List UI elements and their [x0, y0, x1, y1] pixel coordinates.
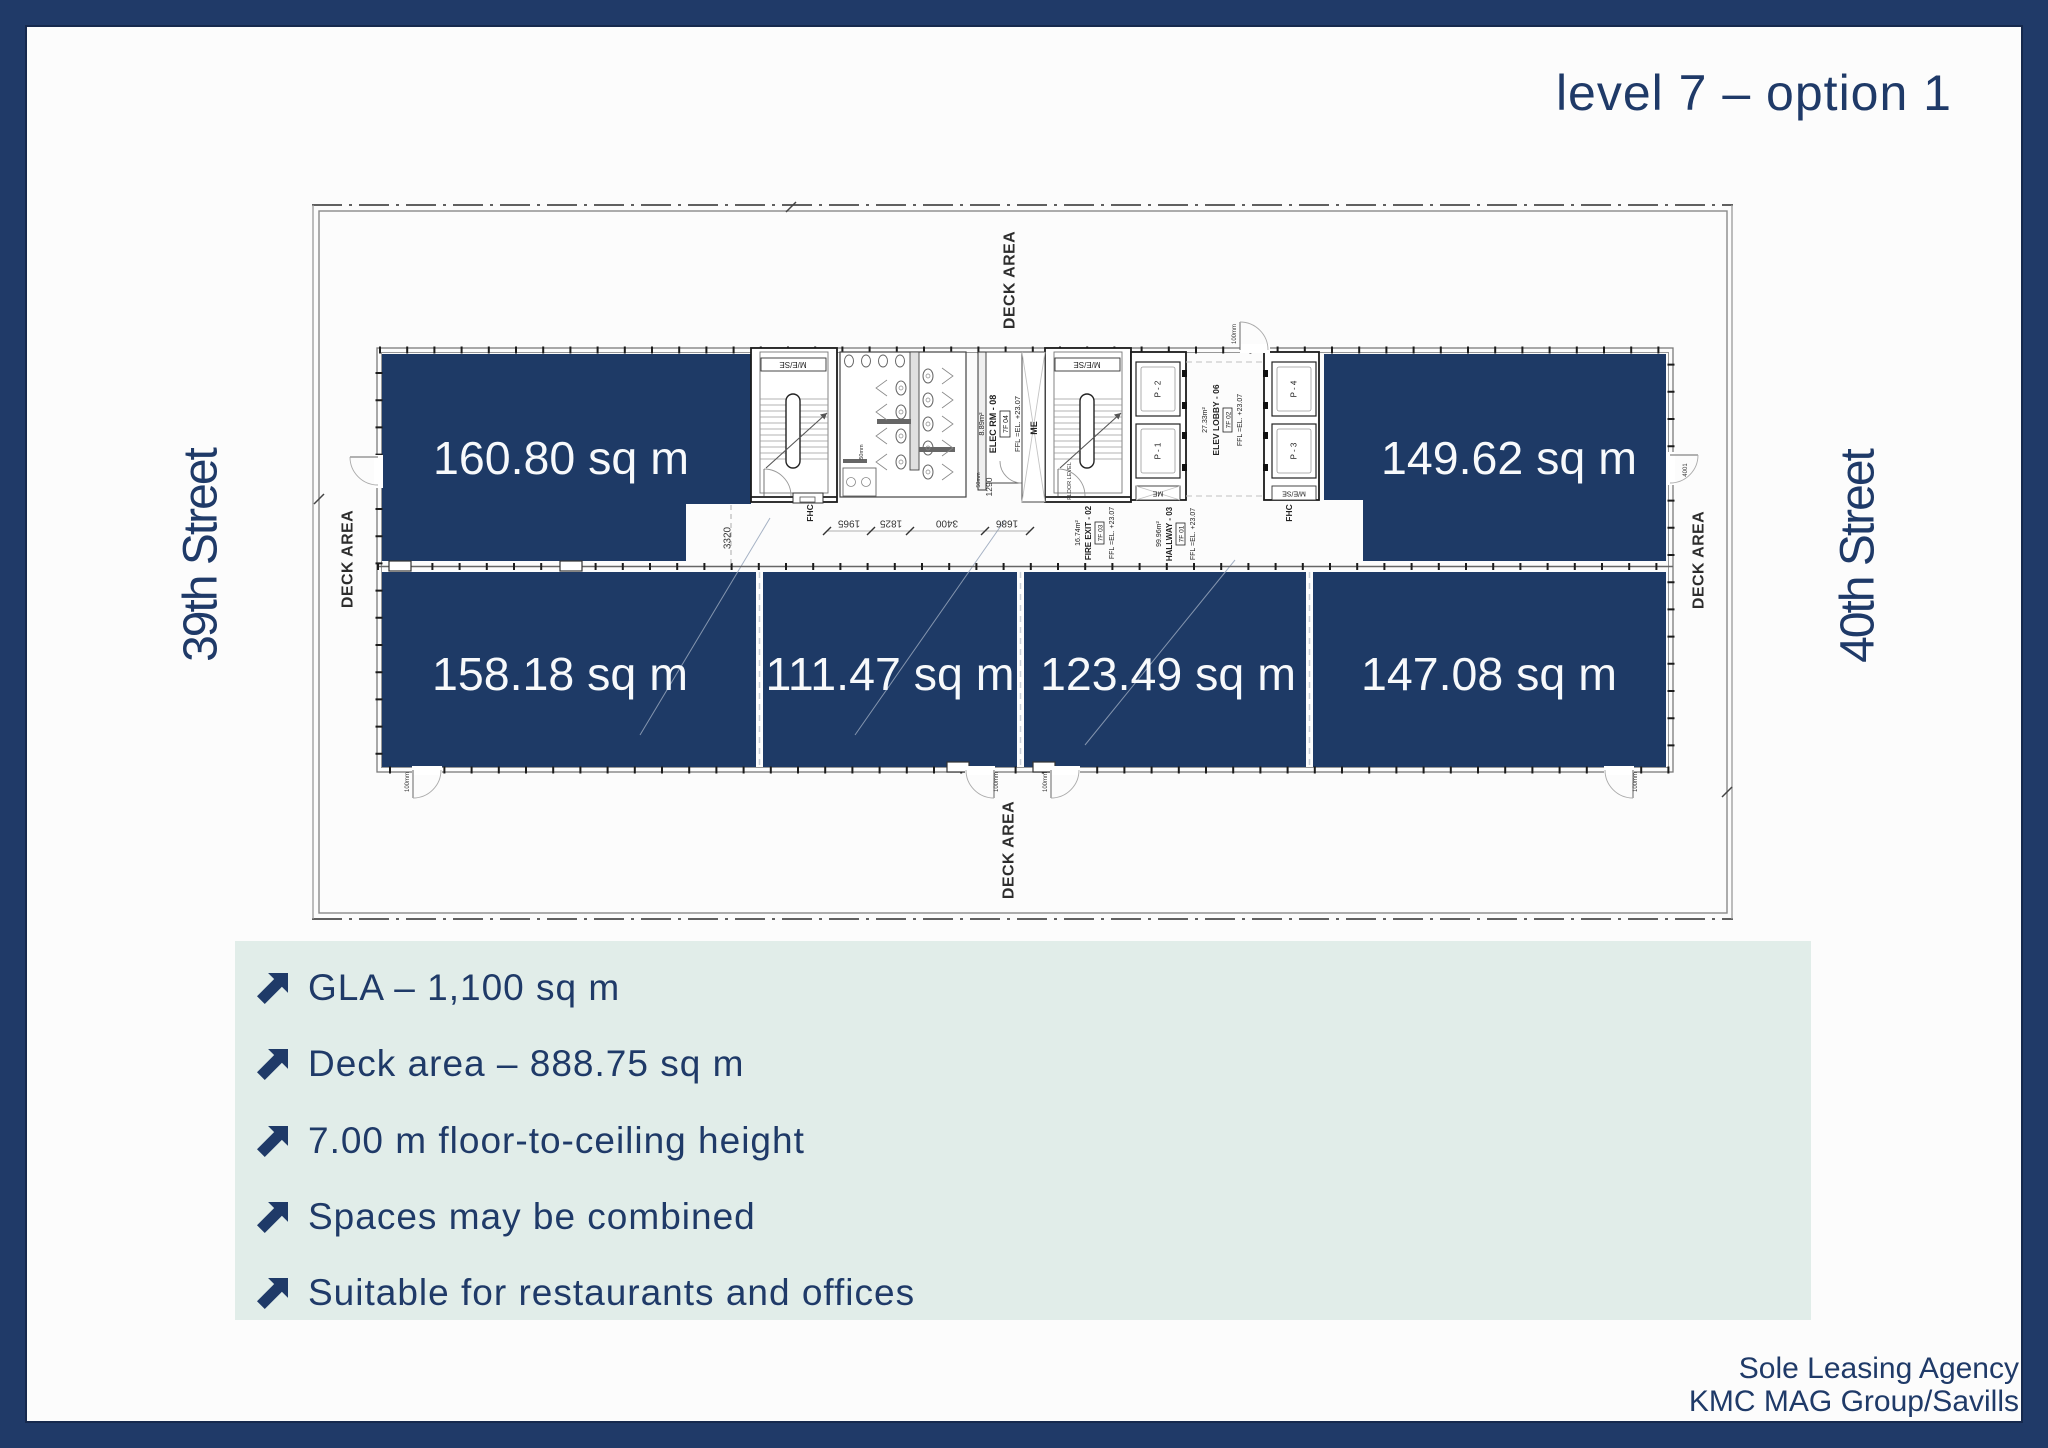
svg-text:123.49 sq m: 123.49 sq m — [1040, 648, 1296, 700]
svg-text:100mm: 100mm — [1633, 772, 1639, 792]
svg-text:M/E/SE: M/E/SE — [1282, 490, 1306, 497]
svg-text:50mm: 50mm — [859, 444, 865, 460]
svg-text:7F 03: 7F 03 — [1098, 524, 1105, 541]
svg-text:FFL =EL. +23.07: FFL =EL. +23.07 — [1190, 508, 1197, 560]
svg-text:M/E/SE: M/E/SE — [1073, 360, 1100, 369]
svg-text:DECK AREA: DECK AREA — [1002, 231, 1019, 329]
svg-text:100mm: 100mm — [1043, 772, 1049, 792]
svg-text:P - 3: P - 3 — [1290, 442, 1299, 459]
svg-text:ELEV LOBBY - 06: ELEV LOBBY - 06 — [1211, 384, 1221, 455]
svg-text:1290: 1290 — [984, 477, 994, 496]
svg-text:ME: ME — [1029, 421, 1039, 435]
svg-text:P - 4: P - 4 — [1290, 380, 1299, 397]
svg-text:3320: 3320 — [723, 526, 734, 549]
svg-text:27.33m²: 27.33m² — [1202, 406, 1209, 432]
svg-text:FFL =EL. +23.07: FFL =EL. +23.07 — [1013, 396, 1022, 452]
svg-text:DECK AREA: DECK AREA — [1001, 801, 1018, 899]
svg-text:111.47 sq m: 111.47 sq m — [765, 648, 1014, 700]
svg-text:16.74m²: 16.74m² — [1075, 519, 1082, 545]
svg-text:FFL =EL. +23.07: FFL =EL. +23.07 — [1237, 394, 1244, 446]
svg-text:7F 02: 7F 02 — [1226, 411, 1233, 428]
svg-text:FHC: FHC — [805, 504, 815, 521]
svg-text:HALLWAY - 03: HALLWAY - 03 — [1165, 506, 1174, 561]
svg-text:FLOOR LEVEL: FLOOR LEVEL — [1067, 462, 1073, 500]
svg-text:DECK AREA: DECK AREA — [340, 510, 357, 608]
svg-text:P - 2: P - 2 — [1154, 380, 1163, 397]
svg-text:1825: 1825 — [879, 518, 902, 529]
svg-text:7F 01: 7F 01 — [1179, 525, 1186, 542]
svg-text:8.89m²: 8.89m² — [977, 412, 986, 436]
svg-text:147.08 sq m: 147.08 sq m — [1361, 648, 1617, 700]
svg-text:7F 04: 7F 04 — [1003, 415, 1010, 433]
svg-text:4001: 4001 — [1683, 463, 1689, 477]
svg-text:50mm: 50mm — [976, 472, 982, 488]
svg-text:100mm: 100mm — [994, 772, 1000, 792]
svg-text:ME: ME — [1152, 490, 1163, 497]
svg-text:3400: 3400 — [935, 518, 958, 529]
svg-text:149.62 sq m: 149.62 sq m — [1381, 432, 1637, 484]
svg-text:P - 1: P - 1 — [1154, 442, 1163, 459]
svg-text:158.18 sq m: 158.18 sq m — [432, 648, 688, 700]
svg-text:DECK AREA: DECK AREA — [1691, 511, 1708, 609]
svg-text:M/E/SE: M/E/SE — [779, 360, 806, 369]
svg-text:160.80 sq m: 160.80 sq m — [433, 432, 689, 484]
svg-text:99.96m²: 99.96m² — [1156, 520, 1163, 546]
svg-text:100mm: 100mm — [405, 772, 411, 792]
svg-text:FFL =EL. +23.07: FFL =EL. +23.07 — [1109, 507, 1116, 559]
svg-text:1965: 1965 — [837, 518, 860, 529]
svg-text:100mm: 100mm — [1232, 324, 1238, 344]
svg-text:FHC: FHC — [1284, 504, 1294, 521]
svg-text:1686: 1686 — [995, 518, 1018, 529]
svg-text:FIRE EXIT - 02: FIRE EXIT - 02 — [1084, 505, 1093, 560]
svg-text:ELEC RM - 08: ELEC RM - 08 — [988, 395, 998, 454]
